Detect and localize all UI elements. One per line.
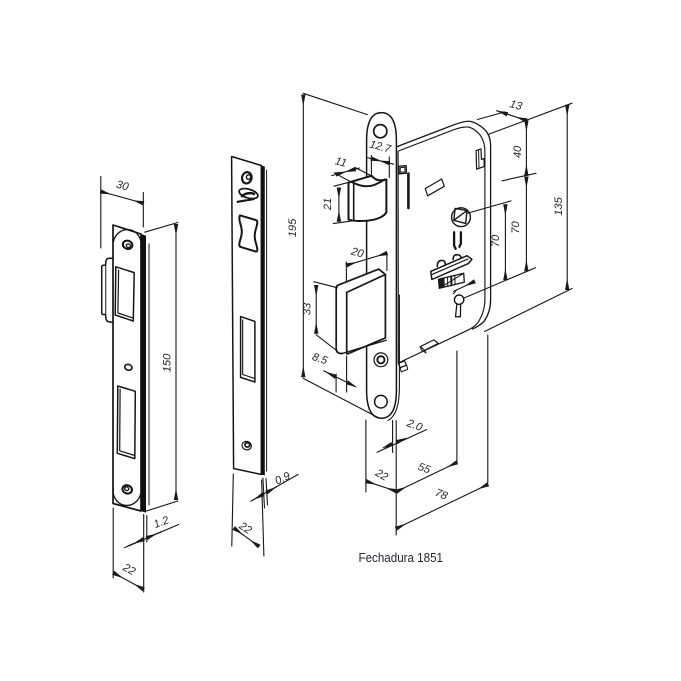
svg-text:78: 78 bbox=[433, 487, 450, 503]
svg-text:Fechadura 1851: Fechadura 1851 bbox=[359, 551, 444, 565]
svg-text:13: 13 bbox=[508, 98, 524, 113]
svg-text:195: 195 bbox=[287, 218, 299, 237]
svg-text:135: 135 bbox=[553, 196, 565, 215]
svg-text:70: 70 bbox=[490, 234, 502, 247]
svg-text:22: 22 bbox=[372, 467, 390, 484]
svg-text:40: 40 bbox=[512, 145, 524, 158]
svg-text:0.9: 0.9 bbox=[273, 470, 292, 487]
svg-text:20: 20 bbox=[349, 245, 366, 260]
svg-text:8.5: 8.5 bbox=[311, 351, 330, 367]
svg-text:33: 33 bbox=[302, 302, 314, 315]
svg-text:22: 22 bbox=[236, 520, 254, 537]
svg-text:30: 30 bbox=[115, 179, 131, 194]
svg-text:150: 150 bbox=[162, 353, 174, 372]
svg-text:70: 70 bbox=[510, 221, 522, 234]
svg-text:11: 11 bbox=[334, 155, 348, 170]
svg-text:22: 22 bbox=[120, 561, 137, 578]
svg-text:55: 55 bbox=[416, 461, 432, 477]
svg-text:21: 21 bbox=[322, 198, 334, 211]
